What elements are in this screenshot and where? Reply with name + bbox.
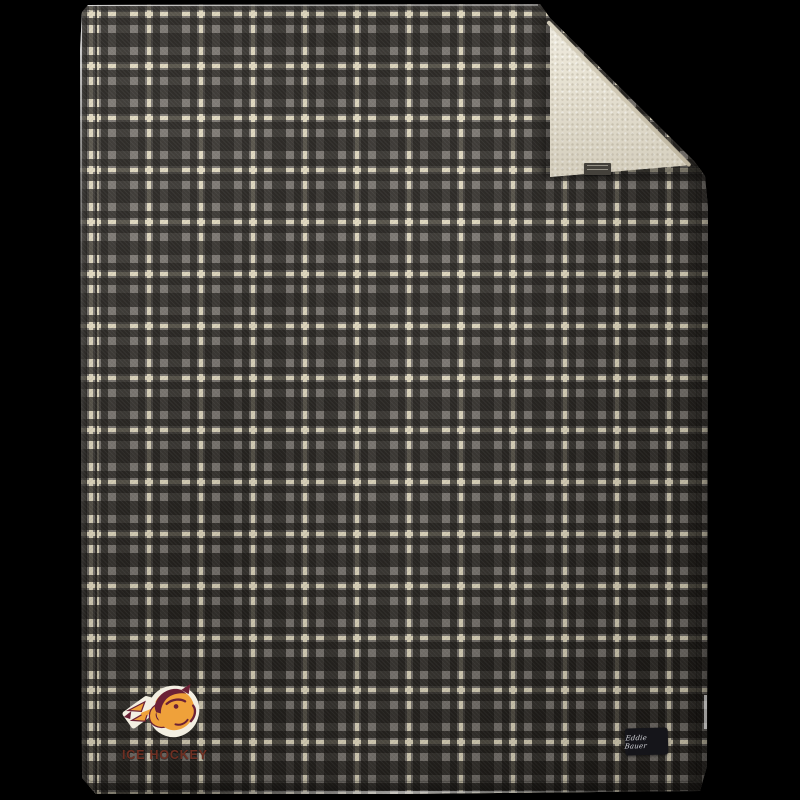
- mascot-logo-icon: [120, 682, 201, 748]
- eddie-bauer-label: Eddie Bauer: [625, 727, 669, 755]
- plaid-blanket: ICE HOCKEY Eddie Bauer: [78, 2, 708, 794]
- team-logo: ICE HOCKEY: [114, 684, 274, 774]
- eddie-bauer-label-text: Eddie Bauer: [624, 733, 669, 750]
- fold-crease-shadow: [538, 18, 551, 174]
- product-photo: ICE HOCKEY Eddie Bauer: [0, 0, 800, 800]
- logo-text: ICE HOCKEY: [122, 748, 208, 762]
- sherpa-care-tag: [584, 163, 611, 175]
